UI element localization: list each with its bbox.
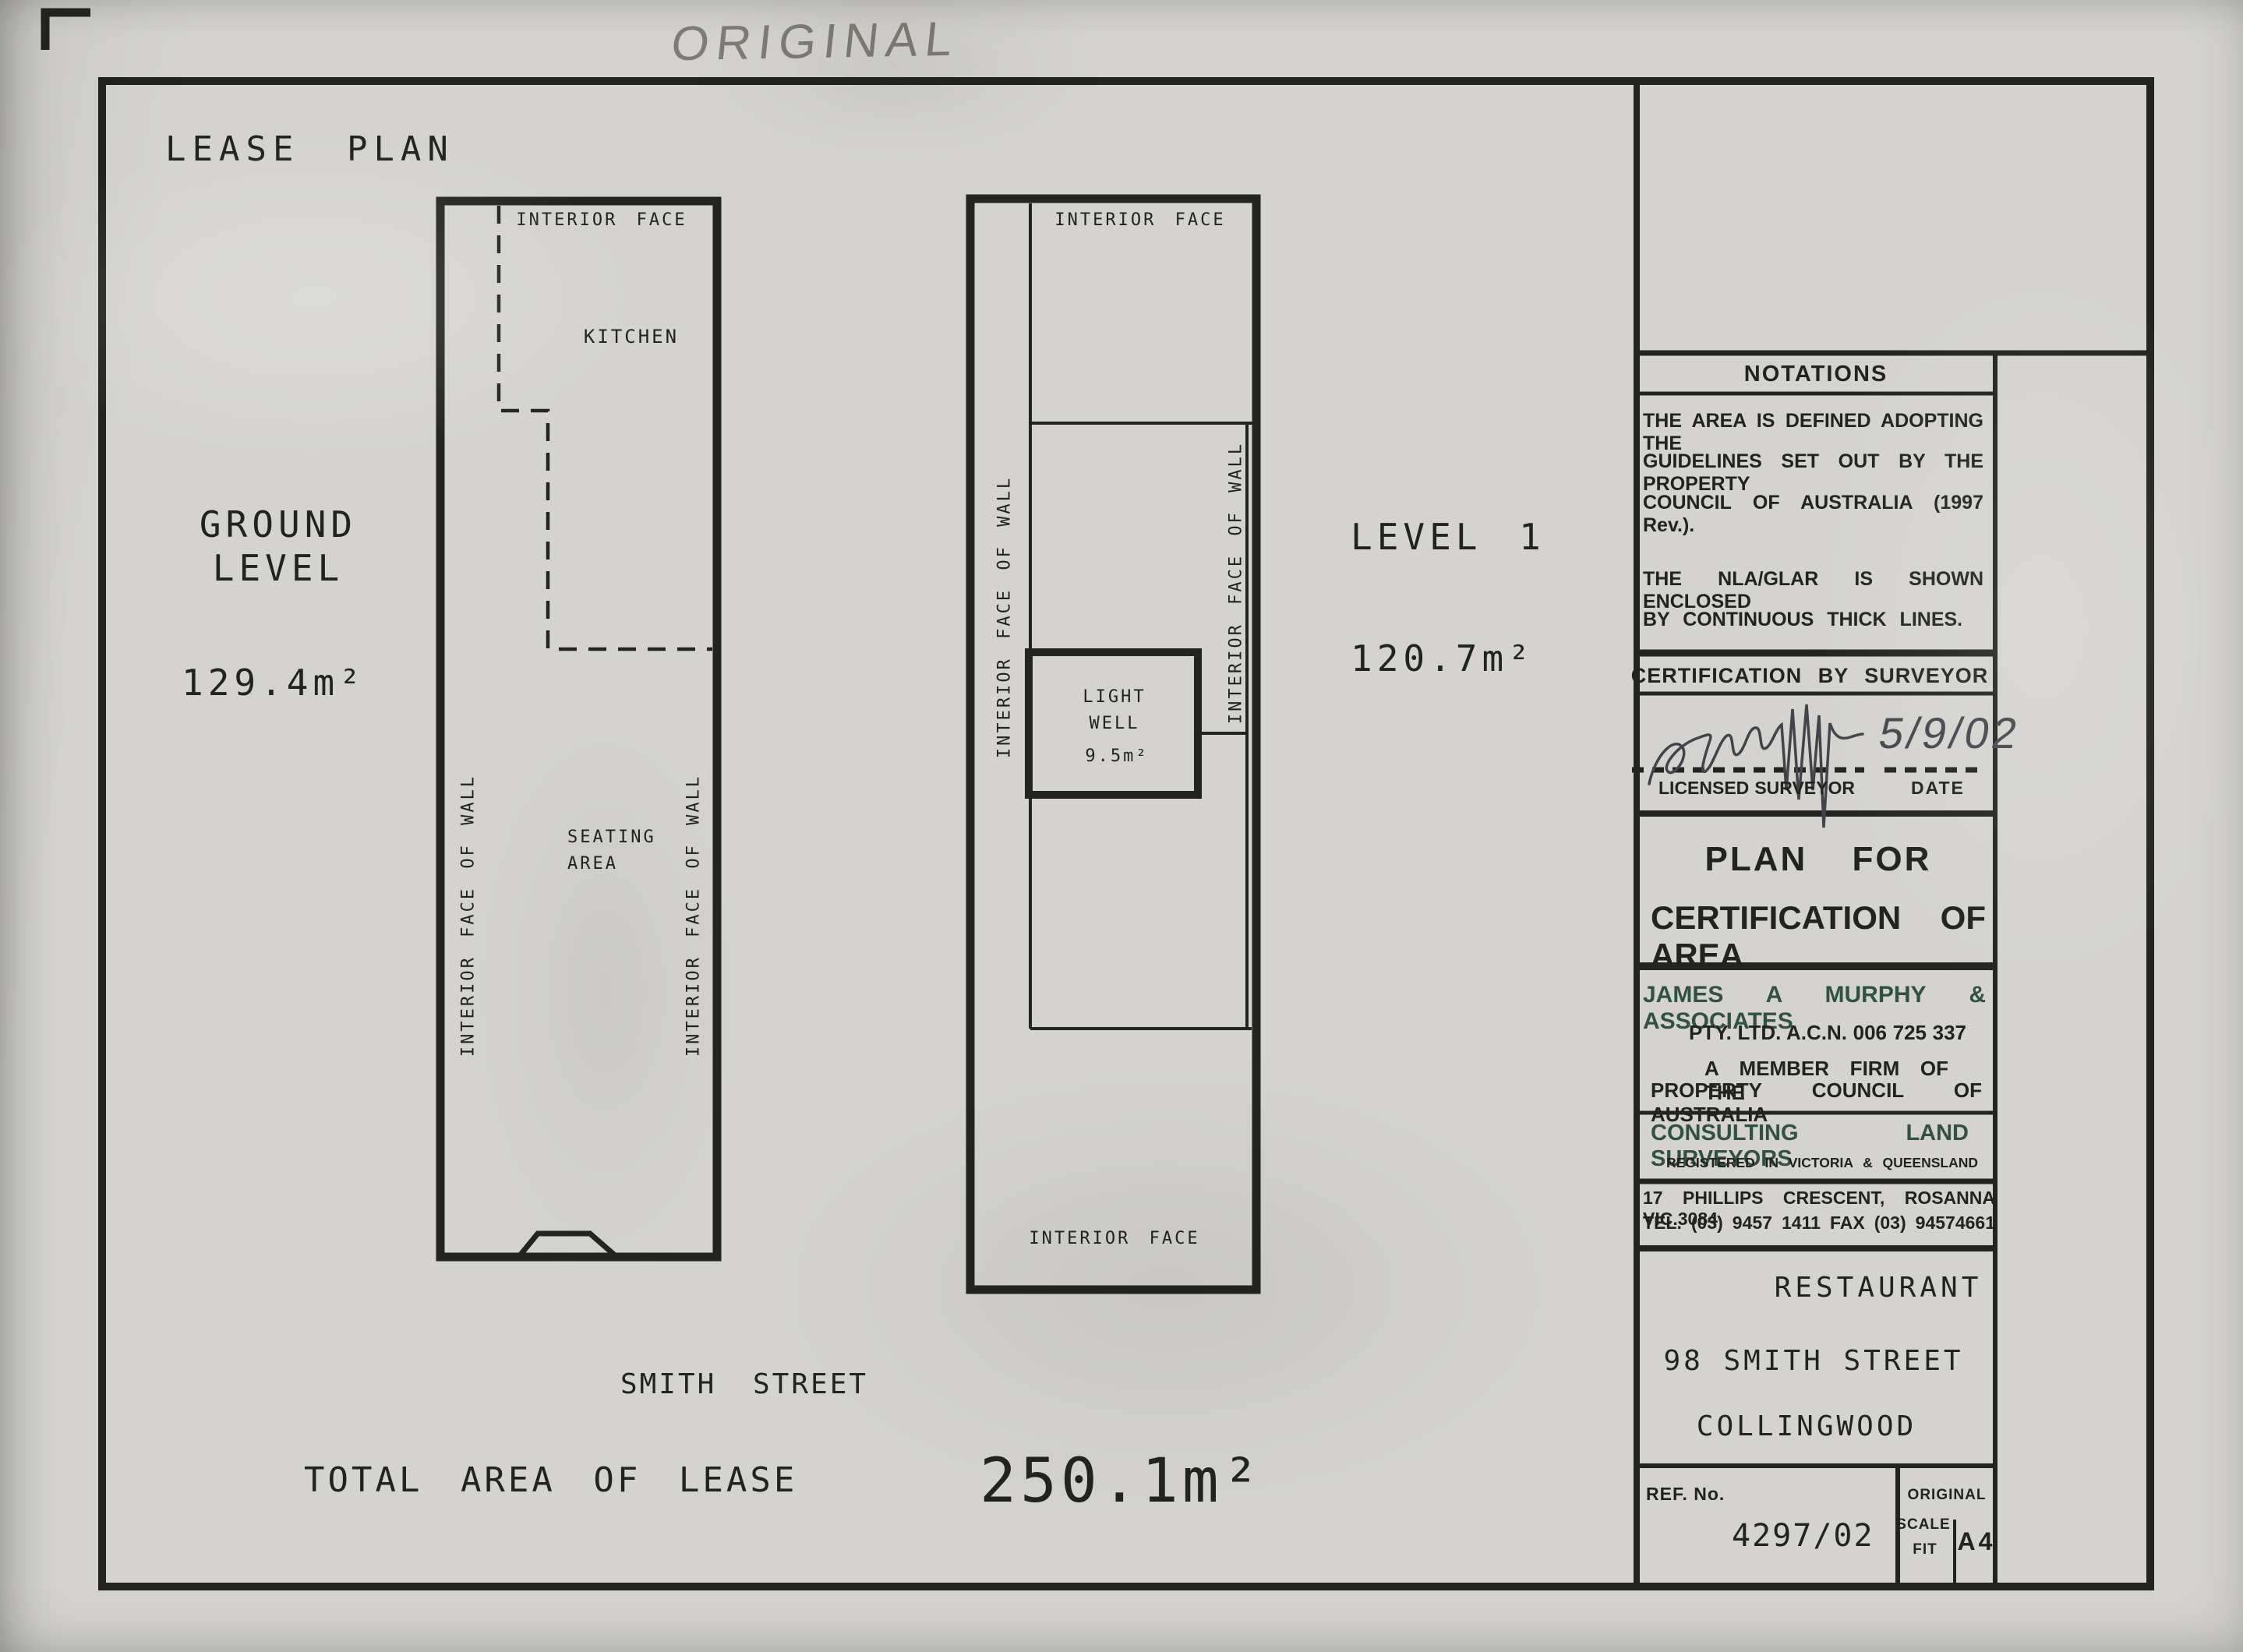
date-label: DATE bbox=[1911, 778, 1965, 799]
ground-kitchen-dashed-boundary bbox=[499, 206, 712, 649]
notations-title: NOTATIONS bbox=[1744, 362, 1888, 387]
ref-scale-line1: SCALE bbox=[1896, 1516, 1950, 1534]
plan-for-line2: CERTIFICATION OF AREA bbox=[1651, 899, 1986, 974]
ref-original-label: ORIGINAL bbox=[1908, 1487, 1987, 1504]
ground-interior-face-label: INTERIOR FACE bbox=[516, 210, 687, 230]
firm-pty-acn: PTY. LTD. A.C.N. 006 725 337 bbox=[1689, 1021, 1966, 1045]
ground-level-name-line2: LEVEL bbox=[213, 547, 344, 589]
ref-scale-line2: FIT bbox=[1913, 1541, 1937, 1558]
firm-member-line2: PROPERTY COUNCIL OF AUSTRALIA bbox=[1651, 1078, 1982, 1127]
light-well-label-line2: WELL bbox=[1090, 714, 1140, 733]
notations-line5: BY CONTINUOUS THICK LINES. bbox=[1643, 609, 1962, 631]
scanned-lease-plan-sheet: ORIGINAL LEASE PLAN GROUND LEVEL 129.4m²… bbox=[0, 0, 2243, 1652]
project-type: RESTAURANT bbox=[1775, 1272, 1983, 1304]
light-well-label-line1: LIGHT bbox=[1083, 687, 1146, 707]
certification-date-value: 5/9/02 bbox=[1875, 708, 2024, 758]
total-area-value: 250.1m² bbox=[980, 1446, 1263, 1516]
notations-line3: COUNCIL OF AUSTRALIA (1997 Rev.). bbox=[1643, 492, 1983, 537]
ground-level-name-line1: GROUND bbox=[200, 503, 357, 545]
project-suburb: COLLINGWOOD bbox=[1697, 1410, 1916, 1442]
plan-for-line1: PLAN FOR bbox=[1705, 840, 1932, 879]
sheet-title: LEASE PLAN bbox=[165, 129, 454, 169]
level1-name: LEVEL 1 bbox=[1351, 516, 1545, 558]
ground-right-wall-label: INTERIOR FACE OF WALL bbox=[684, 775, 704, 1057]
ground-kitchen-label: KITCHEN bbox=[584, 326, 679, 348]
licensed-surveyor-label: LICENSED SURVEYOR bbox=[1658, 778, 1855, 799]
notations-line1: THE AREA IS DEFINED ADOPTING THE bbox=[1643, 410, 1983, 455]
notations-line2: GUIDELINES SET OUT BY THE PROPERTY bbox=[1643, 450, 1983, 496]
ref-number: 4297/02 bbox=[1732, 1518, 1874, 1554]
ground-left-wall-label: INTERIOR FACE OF WALL bbox=[459, 775, 479, 1057]
smith-street-label: SMITH STREET bbox=[620, 1368, 868, 1400]
total-area-label: TOTAL AREA OF LEASE bbox=[304, 1460, 797, 1500]
ground-seating-label-line2: AREA bbox=[567, 854, 618, 874]
light-well-area: 9.5m² bbox=[1085, 747, 1148, 766]
project-street: 98 SMITH STREET bbox=[1663, 1345, 1963, 1377]
ref-paper-size: A4 bbox=[1958, 1527, 1996, 1556]
level1-interior-face-top-label: INTERIOR FACE bbox=[1054, 210, 1225, 230]
ground-level-area: 129.4m² bbox=[182, 662, 366, 704]
firm-phone: TEL. (03) 9457 1411 FAX (03) 94574661 bbox=[1643, 1213, 1995, 1234]
certification-title: CERTIFICATION BY SURVEYOR bbox=[1631, 664, 1989, 688]
surveyor-signature bbox=[1649, 704, 1863, 828]
corner-mark bbox=[45, 12, 90, 50]
level1-area: 120.7m² bbox=[1351, 637, 1535, 680]
firm-registered: REGISTERED IN VICTORIA & QUEENSLAND bbox=[1666, 1155, 1978, 1171]
ground-seating-label-line1: SEATING bbox=[567, 828, 656, 847]
ground-plan-outline bbox=[440, 201, 717, 1257]
level1-right-wall-label: INTERIOR FACE OF WALL bbox=[1227, 442, 1246, 724]
ref-label: REF. No. bbox=[1646, 1484, 1725, 1505]
level1-left-wall-label: INTERIOR FACE OF WALL bbox=[995, 476, 1015, 758]
notations-line4: THE NLA/GLAR IS SHOWN ENCLOSED bbox=[1643, 568, 1983, 613]
level1-interior-face-bottom-label: INTERIOR FACE bbox=[1029, 1229, 1199, 1248]
handwritten-original-note: ORIGINAL bbox=[669, 12, 963, 72]
ground-entry-trapezoid bbox=[521, 1234, 614, 1255]
plan-linework bbox=[0, 0, 2243, 1652]
